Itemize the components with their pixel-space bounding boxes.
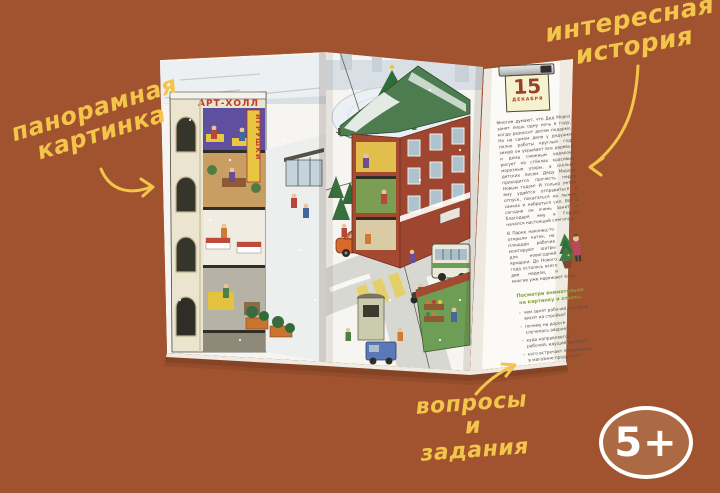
vertical-sign-label: ИГРУШКИ bbox=[254, 114, 262, 161]
calendar-day: 15 bbox=[506, 76, 549, 98]
vertical-sign: ИГРУШКИ bbox=[247, 110, 262, 182]
age-badge: 5+ bbox=[599, 406, 693, 479]
left-page: АРТ-ХОЛЛ bbox=[160, 52, 330, 362]
calendar-leaf: 15 декабря bbox=[505, 73, 551, 112]
callout-questions-tasks: вопросы и задания bbox=[408, 388, 539, 467]
questions-heading: Посмотри внимательно на картинку и ответ… bbox=[514, 287, 587, 307]
tear-off-calendar-icon: 15 декабря bbox=[498, 63, 556, 112]
callout-tasks-line2: и задания bbox=[409, 411, 538, 466]
calendar-month: декабря bbox=[507, 97, 549, 104]
age-badge-label: 5+ bbox=[614, 420, 677, 466]
center-page bbox=[326, 52, 486, 371]
promo-image: АРТ-ХОЛЛ bbox=[0, 0, 720, 493]
arrow-to-picture-icon bbox=[101, 169, 153, 196]
arrow-to-calendar-icon bbox=[590, 66, 638, 175]
building-sign: АРТ-ХОЛЛ bbox=[198, 99, 259, 109]
questions-list: чем занят рабочий, который висит на стро… bbox=[519, 305, 594, 366]
girl-decorating-tree-icon bbox=[556, 226, 585, 270]
story-paragraph-1: Многие думают, что Дед Мороз занят лишь … bbox=[496, 114, 580, 229]
story-paragraph-2-wrap: В Парке наконец-то открыли каток, на пло… bbox=[507, 225, 586, 286]
kiosk bbox=[357, 294, 385, 341]
